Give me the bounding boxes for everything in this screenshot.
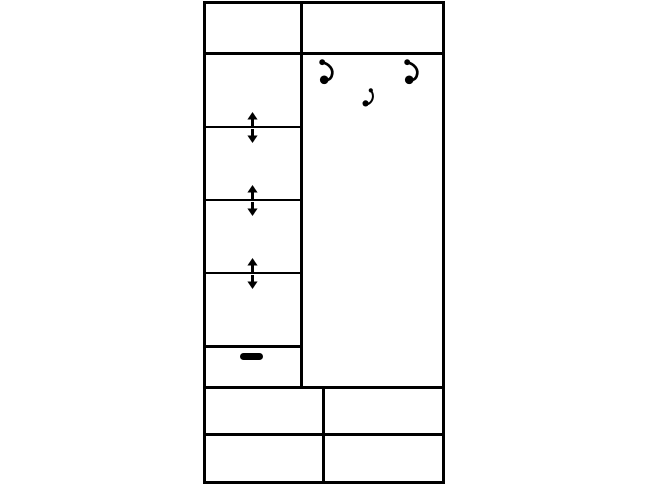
drawer-column-divider bbox=[322, 386, 325, 481]
shelf-adjust-down-arrow-icon-1 bbox=[247, 129, 258, 143]
shelf-adjust-down-arrow-icon-3 bbox=[247, 275, 258, 289]
coat-hook-left-icon bbox=[317, 59, 339, 85]
shelf-adjust-up-arrow-icon-2 bbox=[247, 185, 258, 199]
shelf-adjust-down-arrow-icon-2 bbox=[247, 202, 258, 216]
adjustable-shelf-line-1 bbox=[206, 126, 300, 128]
coat-hook-right-icon bbox=[402, 59, 424, 85]
coat-hook-center-small-icon bbox=[360, 88, 376, 108]
adjustable-shelf-line-2 bbox=[206, 199, 300, 201]
center-vertical-divider bbox=[300, 1, 303, 389]
adjustable-shelf-line-3 bbox=[206, 272, 300, 274]
shelf-adjust-up-arrow-icon-1 bbox=[247, 112, 258, 126]
small-drawer-top-divider bbox=[206, 345, 300, 348]
drawer-handle-icon bbox=[240, 353, 263, 360]
top-cabinet-bottom-divider bbox=[203, 52, 445, 55]
wardrobe-diagram bbox=[0, 0, 648, 486]
shelf-adjust-up-arrow-icon-3 bbox=[247, 258, 258, 272]
